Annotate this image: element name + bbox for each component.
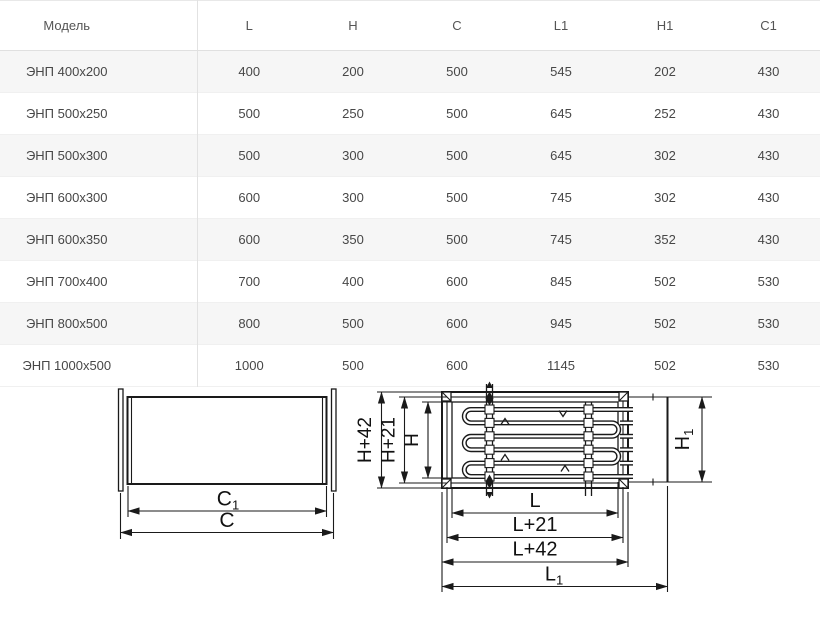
dim-label-h21: H+21 <box>379 417 400 463</box>
cell: 500 <box>197 135 301 177</box>
cell: 945 <box>509 303 613 345</box>
cell: 645 <box>509 93 613 135</box>
cell: 200 <box>301 51 405 93</box>
table-row: ЭНП 500x250 500 250 500 645 252 430 <box>0 93 820 135</box>
heater-outer-frame <box>442 392 628 488</box>
cell: 430 <box>717 177 820 219</box>
cell: 500 <box>197 93 301 135</box>
col-header-h1: H1 <box>613 1 717 51</box>
table-header-row: Модель L H C L1 H1 C1 <box>0 1 820 51</box>
cell: 600 <box>405 261 509 303</box>
col-header-l1: L1 <box>509 1 613 51</box>
model-name: ЭНП 400x200 <box>0 51 197 93</box>
cell: 302 <box>613 177 717 219</box>
height-dimensions: H+42 H+21 H <box>355 392 452 488</box>
cell: 845 <box>509 261 613 303</box>
dim-label-h: H <box>402 433 423 447</box>
model-name: ЭНП 700x400 <box>0 261 197 303</box>
cell: 350 <box>301 219 405 261</box>
cell: 700 <box>197 261 301 303</box>
table-row: ЭНП 600x300 600 300 500 745 302 430 <box>0 177 820 219</box>
cell: 545 <box>509 51 613 93</box>
cell: 600 <box>197 219 301 261</box>
table-row: ЭНП 500x300 500 300 500 645 302 430 <box>0 135 820 177</box>
cell: 352 <box>613 219 717 261</box>
table-row: ЭНП 400x200 400 200 500 545 202 430 <box>0 51 820 93</box>
cell: 300 <box>301 177 405 219</box>
flange-plate-left-outer <box>119 389 124 491</box>
front-view-drawing: H1 H+42 H+21 H <box>355 382 712 593</box>
cell: 430 <box>717 219 820 261</box>
dim-label-l1: L1 <box>545 564 563 588</box>
spec-table: Модель L H C L1 H1 C1 ЭНП 400x200 400 20… <box>0 0 820 387</box>
cell: 500 <box>405 135 509 177</box>
dim-label-l21: L+21 <box>512 514 557 536</box>
model-name: ЭНП 800x500 <box>0 303 197 345</box>
terminal-box <box>628 394 712 486</box>
col-header-model: Модель <box>0 1 197 51</box>
cell: 302 <box>613 135 717 177</box>
col-header-l: L <box>197 1 301 51</box>
cell: 430 <box>717 93 820 135</box>
cell: 500 <box>405 219 509 261</box>
dim-label-h1: H1 <box>672 429 696 451</box>
cell: 300 <box>301 135 405 177</box>
length-dimensions: L L+21 L+42 L1 <box>442 482 668 592</box>
col-header-c: C <box>405 1 509 51</box>
cell: 745 <box>509 219 613 261</box>
dim-label-l42: L+42 <box>512 539 557 561</box>
col-header-c1: C1 <box>717 1 820 51</box>
cell: 400 <box>301 261 405 303</box>
dim-label-l: L <box>529 490 540 512</box>
model-name: ЭНП 600x300 <box>0 177 197 219</box>
cell: 252 <box>613 93 717 135</box>
cell: 250 <box>301 93 405 135</box>
cell: 430 <box>717 51 820 93</box>
cell: 530 <box>717 261 820 303</box>
model-name: ЭНП 600x350 <box>0 219 197 261</box>
table-row: ЭНП 600x350 600 350 500 745 352 430 <box>0 219 820 261</box>
cell: 745 <box>509 177 613 219</box>
cell: 530 <box>717 303 820 345</box>
cell: 600 <box>405 303 509 345</box>
cell: 430 <box>717 135 820 177</box>
cell: 400 <box>197 51 301 93</box>
cell: 502 <box>613 303 717 345</box>
side-view-drawing: C1 C <box>119 389 337 539</box>
cell: 800 <box>197 303 301 345</box>
model-name: ЭНП 500x300 <box>0 135 197 177</box>
col-header-h: H <box>301 1 405 51</box>
cell: 502 <box>613 261 717 303</box>
support-bracket-left <box>485 382 494 499</box>
dim-label-c: C <box>219 509 234 532</box>
model-name: ЭНП 500x250 <box>0 93 197 135</box>
cell: 600 <box>197 177 301 219</box>
dim-label-h42: H+42 <box>355 417 376 463</box>
cell: 500 <box>301 303 405 345</box>
cell: 645 <box>509 135 613 177</box>
flange-plate-right-outer <box>332 389 337 491</box>
product-spec-page: Модель L H C L1 H1 C1 ЭНП 400x200 400 20… <box>0 0 820 622</box>
table-row: ЭНП 700x400 700 400 600 845 502 530 <box>0 261 820 303</box>
cell: 500 <box>405 51 509 93</box>
technical-drawing: C1 C <box>0 368 820 622</box>
table-row: ЭНП 800x500 800 500 600 945 502 530 <box>0 303 820 345</box>
duct-body <box>128 397 327 484</box>
cell: 202 <box>613 51 717 93</box>
cell: 500 <box>405 177 509 219</box>
cell: 500 <box>405 93 509 135</box>
